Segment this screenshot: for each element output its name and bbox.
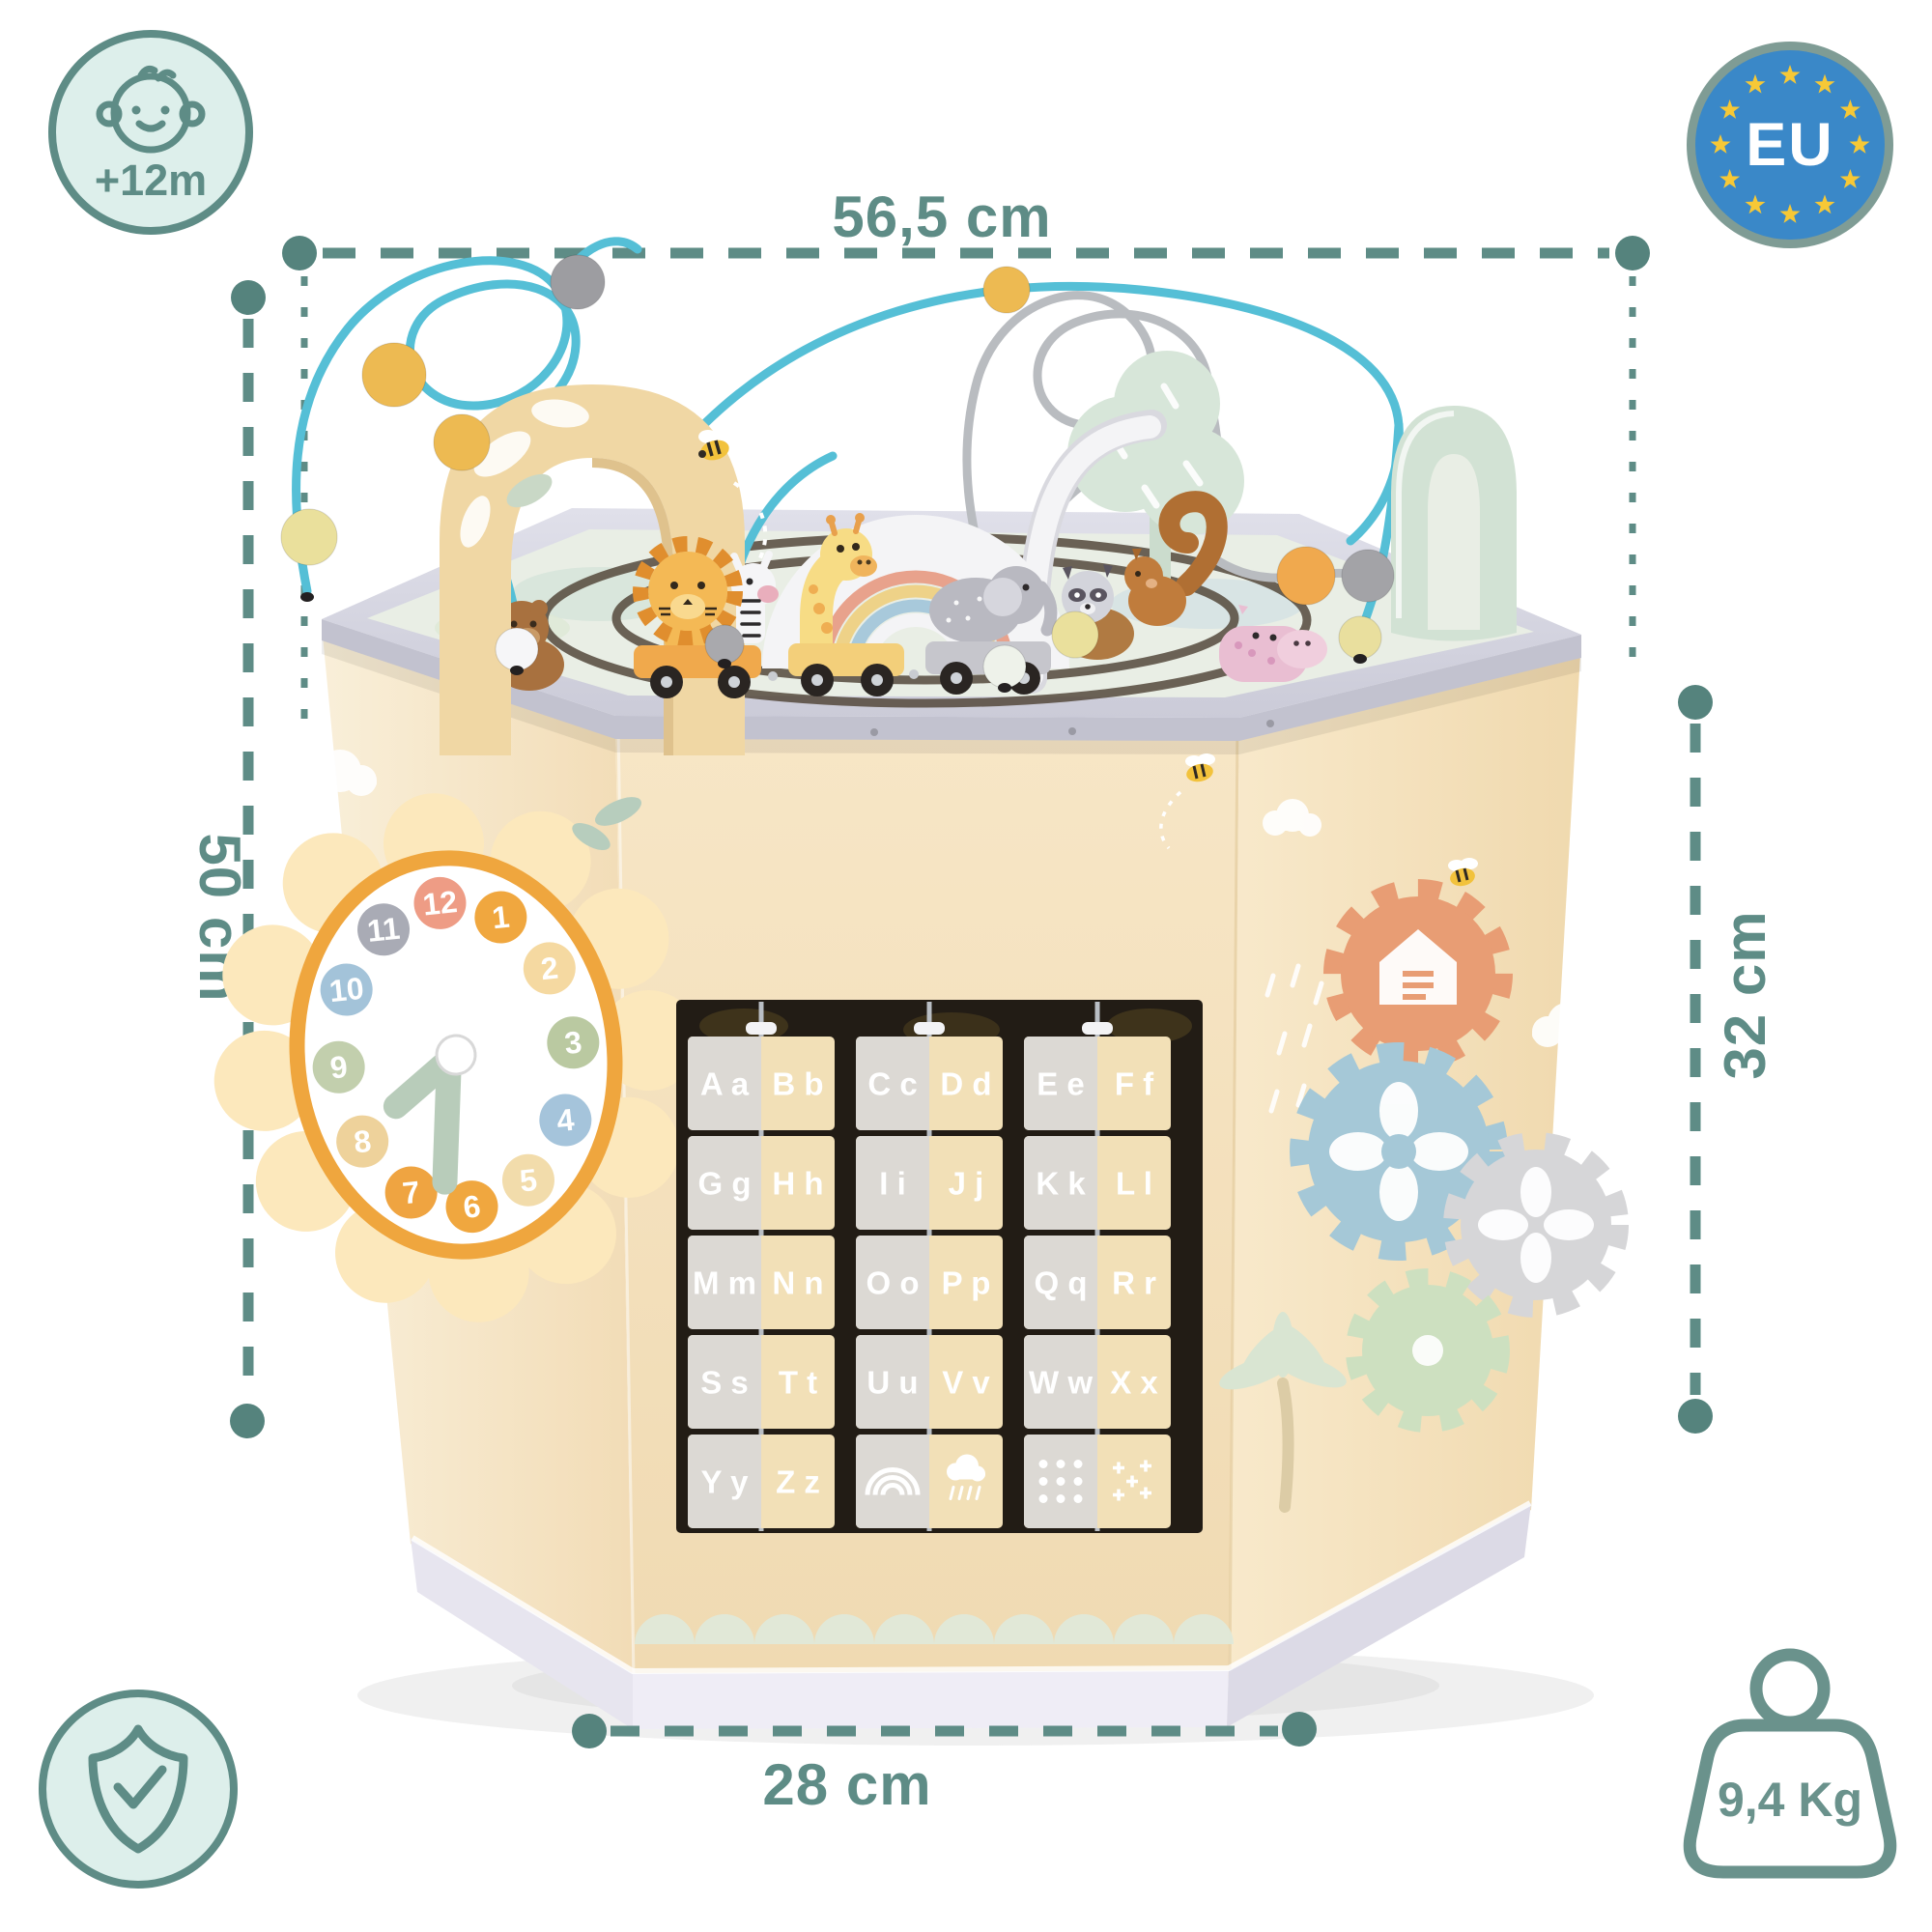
dimension-lines-front: 28 cm <box>0 0 1932 1932</box>
product-infographic: 56,5 cm 50 cm 32 cm <box>0 0 1932 1932</box>
shield-check-icon <box>75 1721 201 1857</box>
dimension-dot <box>1282 1712 1317 1747</box>
baby-face-icon <box>93 60 209 161</box>
age-badge-label: +12m <box>95 156 207 206</box>
age-badge: +12m <box>48 30 253 235</box>
safety-badge <box>39 1690 238 1889</box>
dimension-dot <box>572 1714 607 1748</box>
dim-label-bottom-depth: 28 cm <box>762 1752 931 1817</box>
eu-badge-label: EU <box>1695 50 1885 240</box>
eu-badge: EU <box>1687 42 1893 248</box>
